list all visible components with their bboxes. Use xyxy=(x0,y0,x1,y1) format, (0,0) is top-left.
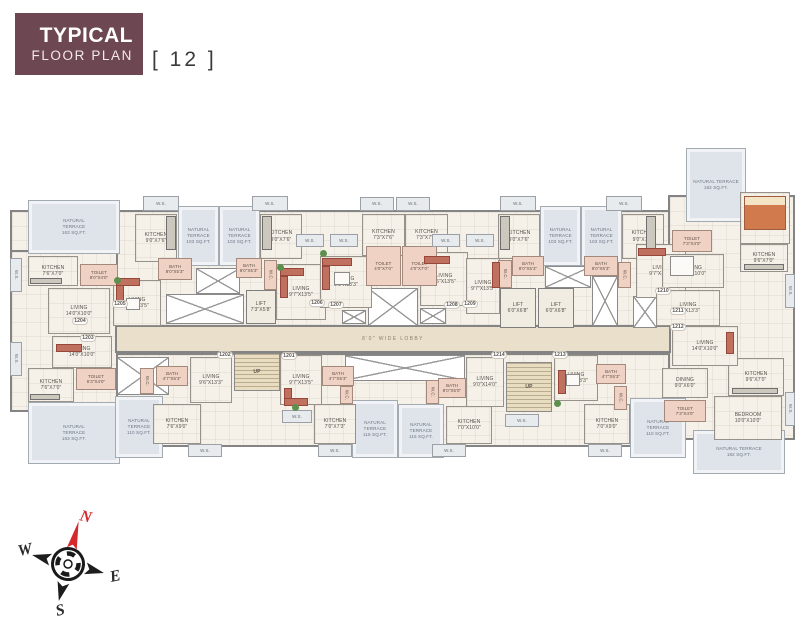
room-bath: BATH 4'7"X5'3" xyxy=(596,364,626,384)
lift: LIFT 6'0"X6'8" xyxy=(500,288,536,328)
bed xyxy=(744,196,786,230)
ws: W.S. xyxy=(282,410,312,423)
unit-tag-1211: 1211 xyxy=(670,307,686,315)
ws: W.S. xyxy=(785,274,795,308)
ws: W.S. xyxy=(432,234,460,247)
room-living: LIVING 14'0"X10'0" xyxy=(48,288,110,334)
sofa xyxy=(322,266,330,290)
room-toilet: TOILET 4'0"X7'0" xyxy=(366,246,401,286)
terrace: NATURAL TERRACE 103 SQ.FT. xyxy=(178,206,219,266)
ws: W.S. xyxy=(360,197,394,211)
compass-label-s: S xyxy=(54,601,67,620)
room-living: LIVING 9'6"X13'3" xyxy=(190,357,232,403)
sofa xyxy=(280,276,288,298)
room-bath: BATH 4'7"X5'3" xyxy=(156,366,188,386)
sofa xyxy=(726,332,734,354)
unit-tag-1202: 1202 xyxy=(217,351,233,359)
room-bath: BATH 8'0"X5'3" xyxy=(236,258,262,278)
unit-tag-1204: 1204 xyxy=(72,317,88,325)
room-toilet: TOILET 7'3"X4'0" xyxy=(672,230,712,252)
room-kitchen: KITCHEN 7'0"X10'0" xyxy=(446,406,492,444)
void xyxy=(342,310,366,324)
unit-tag-1207: 1207 xyxy=(328,301,344,309)
terrace: NATURAL TERRACE 163 SQ.FT. xyxy=(28,402,120,464)
ws: W.S. xyxy=(252,196,288,211)
room-bedroom: BEDROOM 10'0"X10'0" xyxy=(714,396,782,440)
ws: W.S. xyxy=(188,444,222,457)
ws: W.S. xyxy=(606,196,642,211)
table xyxy=(334,272,350,285)
plant xyxy=(277,264,284,271)
east-arrow xyxy=(84,563,105,579)
sofa xyxy=(558,370,566,394)
unit-tag-1214: 1214 xyxy=(491,351,507,359)
counter xyxy=(732,388,778,394)
ws: W.S. xyxy=(505,414,539,427)
table xyxy=(670,256,694,276)
plant xyxy=(114,277,121,284)
room-wc: W.C. xyxy=(498,260,512,288)
page-subtitle: FLOOR PLAN xyxy=(31,48,133,63)
room-wc: W.C. xyxy=(264,260,277,290)
void xyxy=(592,276,618,326)
sofa xyxy=(322,258,352,266)
ws: W.S. xyxy=(10,258,22,292)
unit-tag-1206: 1206 xyxy=(309,299,325,307)
plant xyxy=(320,250,327,257)
room-kitchen: KITCHEN 7'0"X9'0" xyxy=(584,404,630,444)
lift: LIFT 6'0"X6'8" xyxy=(538,288,574,328)
room-toilet: TOILET 7'3"X4'0" xyxy=(664,400,706,422)
ws: W.S. xyxy=(432,444,466,457)
unit-tag-1208: 1208 xyxy=(444,301,460,309)
ws: W.S. xyxy=(330,234,358,247)
ws: W.S. xyxy=(143,196,179,211)
page: { "header": { "title_line1": "TYPICAL", … xyxy=(0,0,800,640)
room-wc: W.C. xyxy=(618,262,631,288)
unit-tag-1201: 1201 xyxy=(281,352,297,360)
ws: W.S. xyxy=(296,234,324,247)
terrace: NATURAL TERRACE 103 SQ.FT. xyxy=(219,206,260,266)
ws: W.S. xyxy=(500,196,536,211)
ws: W.S. xyxy=(10,342,22,376)
counter xyxy=(166,216,176,250)
table xyxy=(126,298,140,310)
staircase: UP xyxy=(234,353,280,391)
void xyxy=(196,268,240,294)
sofa xyxy=(280,268,304,276)
ws: W.S. xyxy=(318,444,352,457)
counter xyxy=(30,394,60,400)
room-wc: W.C. xyxy=(426,380,439,404)
west-arrow xyxy=(31,549,52,565)
sofa xyxy=(638,248,666,256)
ws: W.S. xyxy=(785,392,795,426)
room-living: LIVING 9'5"X13'3" xyxy=(656,290,720,326)
terrace: NATURAL TERRACE 163 SQ.FT. xyxy=(28,200,120,254)
unit-tag-1212: 1212 xyxy=(670,323,686,331)
compass-graphic: N W E S xyxy=(15,498,135,630)
sofa xyxy=(56,344,82,352)
counter xyxy=(30,278,62,284)
room-toilet: TOILET 4'0"X7'0" xyxy=(402,246,437,286)
room-bath: BATH 8'0"X5'3" xyxy=(584,256,618,276)
room-bath: BATH 8'0"X5'3" xyxy=(158,258,192,280)
table xyxy=(566,374,580,386)
unit-tag-1213: 1213 xyxy=(552,351,568,359)
void xyxy=(420,308,446,324)
room-wc: W.C. xyxy=(140,368,154,394)
room-wc: W.C. xyxy=(340,386,353,404)
compass-label-n: N xyxy=(77,507,95,527)
lift: LIFT 7'3"X5'8" xyxy=(246,290,276,324)
room-living: LIVING 9'0"X14'0" xyxy=(466,357,504,407)
unit-tag-1205: 1205 xyxy=(112,300,128,308)
compass-rose: N W E S xyxy=(15,498,135,630)
counter xyxy=(646,216,656,250)
room-dining: DINING 9'0"X6'0" xyxy=(662,368,708,398)
compass-label-e: E xyxy=(107,567,122,586)
void xyxy=(368,288,418,326)
south-arrow xyxy=(53,581,69,602)
room-bath: BATH 8'0"X5'0" xyxy=(438,378,466,398)
ws: W.S. xyxy=(396,197,430,211)
room-bath: BATH 8'0"X5'3" xyxy=(512,256,544,276)
room-wc: W.C. xyxy=(614,386,627,410)
title-block: TYPICAL FLOOR PLAN xyxy=(15,13,143,75)
compass-arrows xyxy=(23,512,115,609)
room-toilet: TOILET 8'0"X4'0" xyxy=(80,264,118,286)
counter xyxy=(500,216,510,250)
void xyxy=(633,296,657,328)
sofa xyxy=(424,256,450,264)
unit-tag-1210: 1210 xyxy=(655,287,671,295)
plant xyxy=(292,404,299,411)
ws: W.S. xyxy=(588,444,622,457)
plant xyxy=(554,400,561,407)
ws: W.S. xyxy=(466,234,494,247)
lobby-corridor: 8'0" WIDE LOBBY xyxy=(115,325,671,353)
sofa xyxy=(492,262,500,288)
void xyxy=(166,294,244,324)
room-kitchen: KITCHEN 7'0"X7'3" xyxy=(314,404,356,444)
terrace: NATURAL TERRACE 115 SQ.FT. xyxy=(352,400,398,458)
counter xyxy=(262,216,272,250)
room-kitchen: KITCHEN 7'6"X9'0" xyxy=(153,404,201,444)
floor-number: [ 12 ] xyxy=(152,48,217,72)
counter xyxy=(744,264,784,270)
unit-tag-1209: 1209 xyxy=(462,300,478,308)
unit-tag-1203: 1203 xyxy=(80,334,96,342)
room-bath: BATH 4'7"X5'3" xyxy=(322,366,354,386)
compass-label-w: W xyxy=(16,540,35,560)
terrace: NATURAL TERRACE 103 SQ.FT. xyxy=(540,206,581,266)
terrace: NATURAL TERRACE 182 SQ.FT. xyxy=(686,148,746,222)
room-toilet: TOILET 6'3"X4'0" xyxy=(76,368,116,390)
staircase: UP xyxy=(506,362,552,412)
page-title: TYPICAL xyxy=(40,25,133,47)
